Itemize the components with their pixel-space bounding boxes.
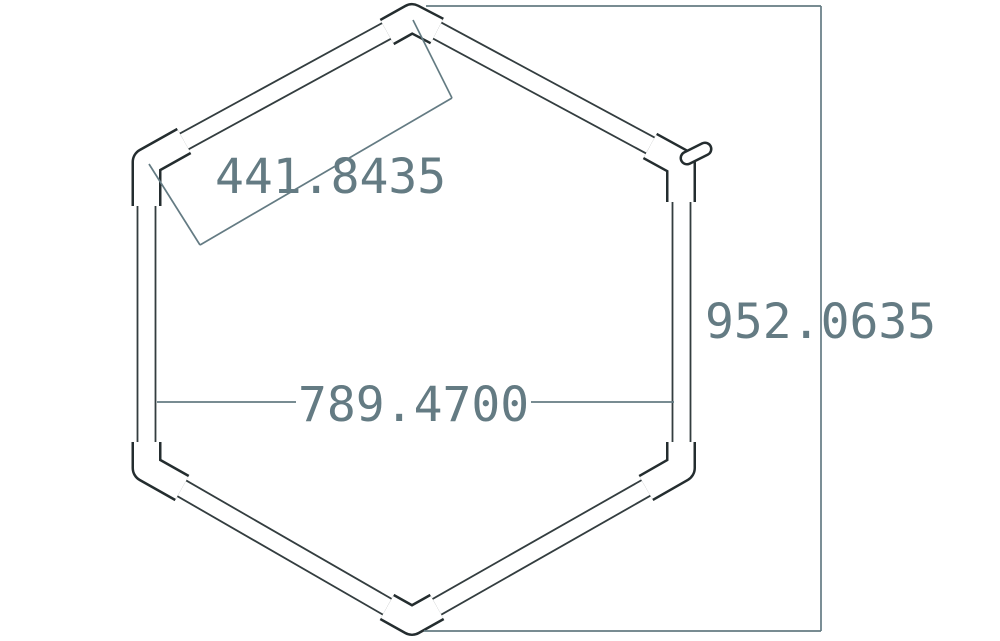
bottom-v-connector [387,607,437,621]
cad-canvas: 441.8435 952.0635 789.4700 [0,0,1000,641]
lower-left-elbow-connector [147,442,183,488]
dimension-vertical-extent: 952.0635 [424,6,936,631]
lower-right-elbow-connector [646,442,681,488]
tube-bottom-right [408,460,686,629]
tube-top-right [408,9,686,170]
dimension-aligned-edge: 441.8435 [149,20,452,245]
top-corner-connector [387,18,437,32]
tube-left [138,162,156,468]
hexagon-frame [138,9,706,629]
upper-right-y-connector [650,146,705,202]
tube-right [673,162,691,468]
dimension-value: 952.0635 [705,294,936,350]
cad-drawing-viewport: 441.8435 952.0635 789.4700 [0,0,1000,641]
dimension-value: 789.4700 [298,377,529,433]
upper-left-elbow-connector [147,141,185,206]
dimension-horizontal-width: 789.4700 [157,377,674,433]
dimension-value: 441.8435 [215,149,446,205]
